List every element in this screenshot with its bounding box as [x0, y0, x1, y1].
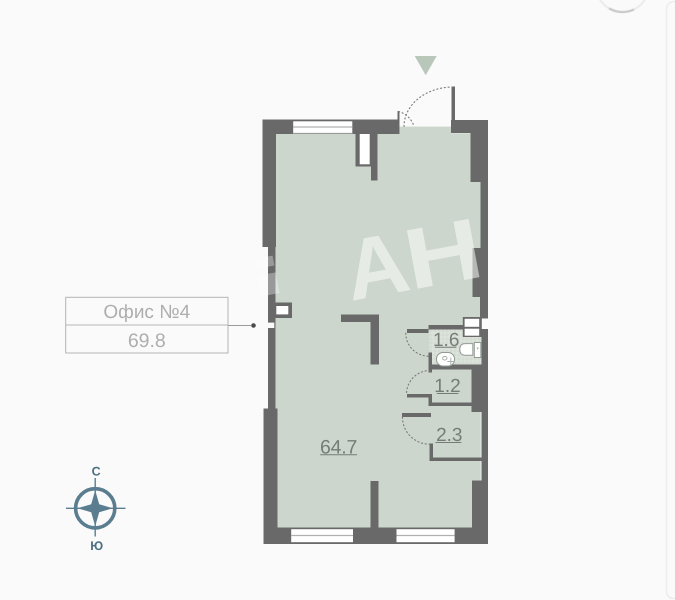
svg-text:Офис №4: Офис №4	[103, 302, 190, 323]
svg-text:69.8: 69.8	[128, 330, 166, 352]
svg-text:С: С	[92, 465, 101, 479]
svg-text:Ю: Ю	[90, 539, 103, 553]
svg-text:1.6: 1.6	[433, 330, 459, 351]
